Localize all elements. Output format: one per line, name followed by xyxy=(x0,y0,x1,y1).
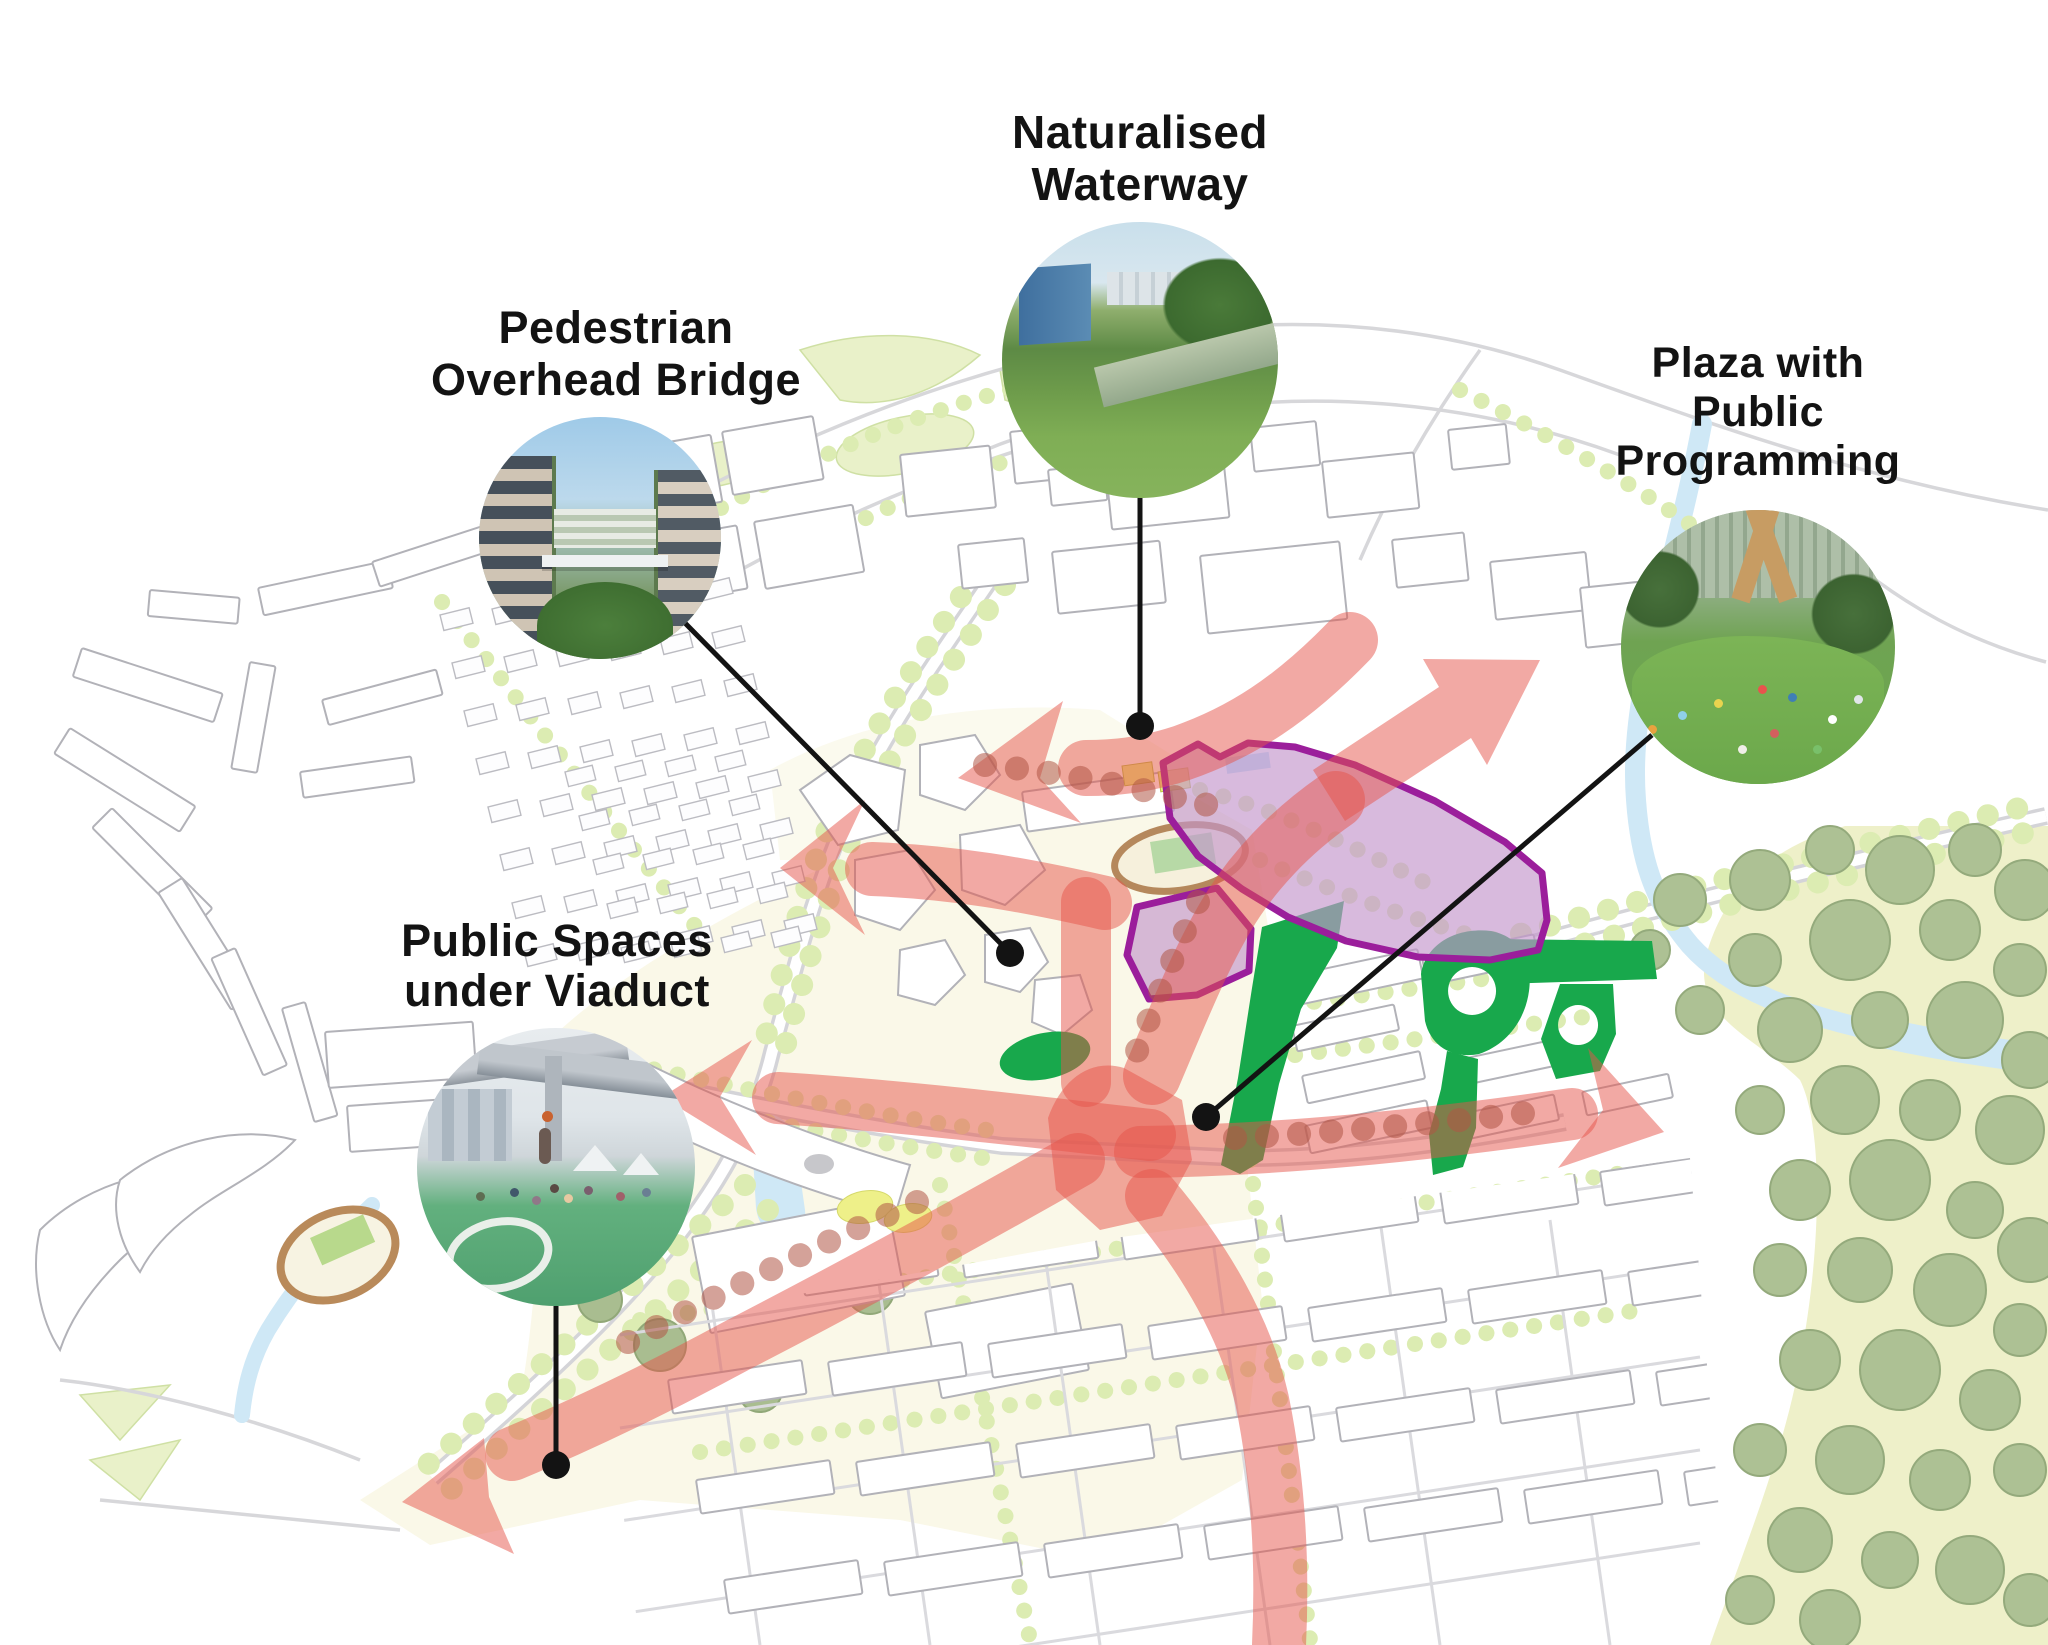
marker-plaza xyxy=(1192,1103,1220,1131)
naturalised-waterway-photo xyxy=(1002,222,1278,498)
photo-blue-building xyxy=(1019,264,1091,346)
label-line: Waterway xyxy=(890,158,1390,210)
callout-label-plaza-with-public-programming: Plaza with Public Programming xyxy=(1533,339,1983,486)
photo-trees-left xyxy=(1621,537,1714,641)
label-line: Plaza with xyxy=(1533,339,1983,388)
masterplan-map xyxy=(0,0,2048,1645)
label-line: Pedestrian xyxy=(366,302,866,354)
label-line: Programming xyxy=(1533,437,1983,486)
photo-tent xyxy=(623,1153,659,1175)
label-line: Overhead Bridge xyxy=(366,354,866,406)
public-spaces-under-viaduct-photo xyxy=(417,1028,695,1306)
photo-jumping-person xyxy=(539,1128,551,1164)
photo-mid-building xyxy=(554,509,656,548)
plaza-with-public-programming-photo xyxy=(1621,510,1895,784)
label-line: Public Spaces xyxy=(307,916,807,966)
photo-courtyard-trees xyxy=(537,582,673,659)
callout-label-public-spaces-under-viaduct: Public Spaces under Viaduct xyxy=(307,916,807,1016)
callout-label-naturalised-waterway: Naturalised Waterway xyxy=(890,106,1390,210)
marker-naturalised-waterway xyxy=(1126,712,1154,740)
marker-viaduct xyxy=(542,1451,570,1479)
label-line: Naturalised xyxy=(890,106,1390,158)
photo-bridge-deck xyxy=(542,555,668,567)
photo-city-towers xyxy=(428,1089,511,1161)
photo-lawn xyxy=(1632,636,1884,784)
masterplan-diagram: Naturalised Waterway Pedestrian Overhead… xyxy=(0,0,2048,1645)
label-line: Public xyxy=(1533,388,1983,437)
label-line: under Viaduct xyxy=(307,966,807,1016)
photo-tent xyxy=(573,1145,617,1171)
photo-crowd-dots xyxy=(550,1184,559,1193)
pedestrian-overhead-bridge-photo xyxy=(479,417,721,659)
marker-pedestrian-overhead-bridge xyxy=(996,939,1024,967)
callout-label-pedestrian-overhead-bridge: Pedestrian Overhead Bridge xyxy=(366,302,866,406)
